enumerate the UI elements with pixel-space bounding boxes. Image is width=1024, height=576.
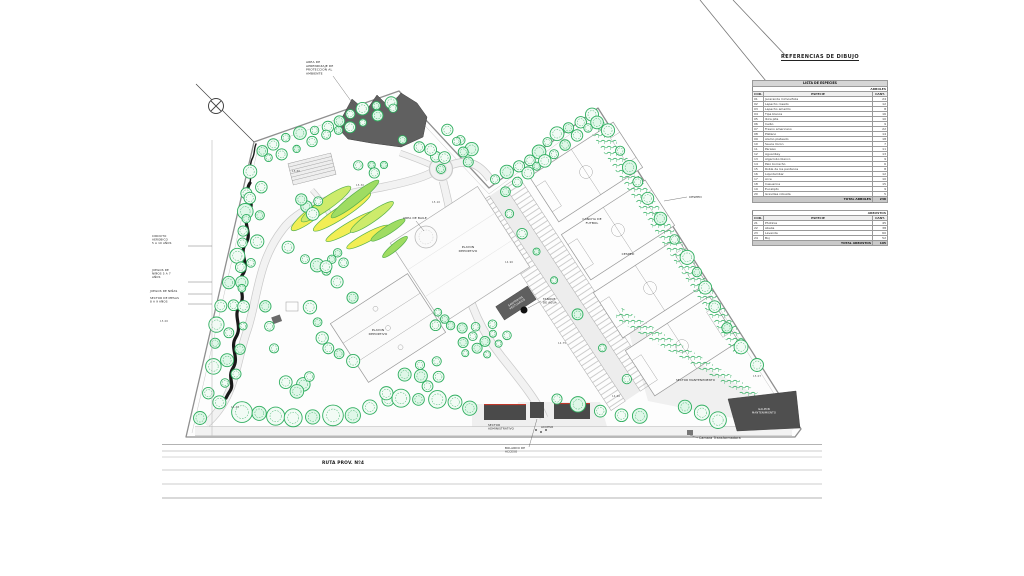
tree-symbol [282, 241, 294, 253]
tree-symbol [221, 354, 234, 367]
label-area-aprendizaje: AREA DEAPRENDIZAJE DEPROTECCION ALAMBIEN… [306, 60, 333, 75]
tree-symbol [463, 157, 473, 167]
tree-symbol [235, 344, 245, 354]
tree-symbol [235, 262, 246, 273]
tree-symbol [512, 177, 522, 187]
tree-symbol [323, 343, 334, 354]
tree-symbol [276, 149, 287, 160]
tree-symbol [331, 276, 343, 288]
tree-symbol [414, 369, 427, 382]
label-cota-8: 15.00 [160, 319, 168, 323]
tree-symbol [356, 102, 369, 115]
tree-symbol [398, 136, 406, 144]
tree-symbol [501, 187, 511, 197]
tree-symbol [243, 165, 256, 178]
tree-symbol [503, 331, 512, 340]
tree-symbol [284, 409, 302, 427]
tree-symbol [380, 161, 387, 168]
tree-symbol [296, 194, 307, 205]
tree-symbol [279, 376, 292, 389]
tree-symbol [320, 261, 332, 273]
water-tank [521, 307, 528, 314]
tree-symbol [290, 385, 304, 399]
tree-symbol [265, 321, 275, 331]
tree-symbol [231, 369, 241, 379]
tree-symbol [389, 104, 397, 112]
tree-symbol [238, 284, 246, 292]
tree-symbol [601, 124, 614, 137]
tree-symbol [256, 181, 268, 193]
tree-symbol [244, 192, 256, 204]
tree-symbol [293, 145, 300, 152]
tree-symbol [458, 338, 468, 348]
tree-symbol [452, 137, 460, 145]
tree-symbol [551, 277, 558, 284]
label-cota-6: 15.07 [753, 374, 761, 378]
tree-symbol [232, 402, 253, 423]
tree-symbol [380, 387, 393, 400]
tree-symbol [269, 344, 278, 353]
tree-symbol [572, 309, 583, 320]
tree-symbol [242, 214, 250, 222]
tree-symbol [415, 360, 424, 369]
tree-symbol [265, 154, 273, 162]
tree-symbol [522, 167, 534, 179]
tree-symbol [491, 175, 500, 184]
tree-symbol [372, 102, 380, 110]
tree-symbol [322, 130, 331, 139]
tree-symbol [339, 258, 349, 268]
tree-symbol [239, 322, 247, 330]
tree-symbol [463, 401, 477, 415]
tree-symbol [252, 406, 266, 420]
tree-symbol [694, 405, 709, 420]
tree-symbol [462, 350, 469, 357]
tree-symbol [347, 292, 358, 303]
dance-circle [415, 226, 437, 248]
tree-symbol [599, 344, 607, 352]
tree-symbol [305, 410, 319, 424]
label-sector-mantenimiento: SECTOR MANTENIMIENTO [676, 378, 716, 382]
tree-symbol [414, 142, 425, 153]
tree-symbol [442, 124, 453, 135]
tree-symbol [500, 165, 513, 178]
tree-symbol [223, 276, 235, 288]
tree-symbol [489, 330, 496, 337]
tree-symbol [549, 150, 558, 159]
tree-symbol [615, 409, 628, 422]
tree-symbol [430, 320, 441, 331]
tree-symbol [215, 300, 227, 312]
tree-symbol [281, 133, 290, 142]
tree-symbol [307, 136, 317, 146]
tree-symbol [260, 301, 271, 312]
tree-symbol [471, 322, 480, 331]
tree-symbol [458, 147, 468, 157]
tree-symbol [591, 116, 604, 129]
tree-symbol [570, 397, 585, 412]
tree-symbol [539, 155, 552, 168]
tree-symbol [734, 340, 748, 354]
tree-symbol [488, 320, 497, 329]
drawing-sheet: AREA DEAPRENDIZAJE DEPROTECCION ALAMBIEN… [0, 0, 1024, 576]
tree-symbol [213, 396, 226, 409]
tree-symbol [238, 238, 248, 248]
tree-symbol [517, 228, 527, 238]
tree-symbol [363, 400, 377, 414]
tree-symbol [221, 379, 230, 388]
tree-symbol [413, 394, 425, 406]
transformer-box [687, 430, 693, 435]
tree-symbol [230, 248, 245, 263]
legend-table-trees: LISTA DE ESPECIESARBOLESCOD.ESPECIECANT.… [752, 80, 888, 203]
tree-symbol [333, 249, 341, 257]
tree-symbol [560, 140, 571, 151]
tree-symbol [238, 301, 250, 313]
admin-building [484, 404, 526, 420]
tree-symbol [622, 374, 631, 383]
tree-symbol [203, 387, 214, 398]
tree-symbol [616, 146, 625, 155]
tree-symbol [305, 372, 315, 382]
label-acceso: ACCESO [541, 425, 554, 429]
tree-symbol [563, 123, 573, 133]
label-cota-9: 15.60 [292, 169, 300, 173]
tree-symbol [334, 349, 344, 359]
tree-symbol [722, 323, 732, 333]
tree-symbol [468, 332, 477, 341]
tree-symbol [429, 391, 447, 409]
tree-symbol [448, 395, 462, 409]
tree-symbol [314, 197, 323, 206]
label-cesped-1: CESPED [689, 195, 702, 199]
tree-symbol [206, 359, 222, 375]
tree-symbol [359, 119, 366, 126]
tree-symbol [255, 211, 264, 220]
legend-panel: REFERENCIAS DE DIBUJO LISTA DE ESPECIESA… [752, 54, 888, 253]
label-cota-5: 14.60 [612, 394, 620, 398]
tree-symbol [622, 160, 636, 174]
kiosk-building [530, 402, 544, 418]
north-arrow [196, 84, 254, 142]
tree-symbol [347, 354, 360, 367]
tree-symbol [425, 144, 437, 156]
tree-symbol [238, 226, 248, 236]
label-cota-1: 15.30 [356, 183, 364, 187]
tree-symbol [247, 258, 256, 267]
label-area-baile: AREA DE BAILE [403, 216, 427, 220]
label-tanque-agua: TANQUEDE AGUA [542, 297, 557, 305]
tree-symbol [372, 110, 383, 121]
tree-symbol [369, 168, 379, 178]
tree-symbol [294, 127, 307, 140]
tree-symbol [434, 308, 442, 316]
tree-symbol [224, 328, 234, 338]
tree-symbol [692, 267, 701, 276]
tree-symbol [268, 139, 279, 150]
tree-symbol [316, 332, 328, 344]
tree-symbol [437, 165, 446, 174]
tree-symbol [505, 209, 513, 217]
tree-symbol [710, 412, 727, 429]
tree-symbol [594, 405, 606, 417]
tree-symbol [633, 177, 643, 187]
tree-symbol [194, 412, 207, 425]
tree-symbol [472, 343, 482, 353]
tree-symbol [709, 301, 721, 313]
label-sector-mesas: SECTOR DE MESAS8 A 9 AÑOS [150, 296, 179, 304]
tree-symbol [654, 212, 667, 225]
road-lines [162, 445, 822, 499]
tree-symbol [346, 110, 355, 119]
tree-symbol [267, 407, 285, 425]
label-circuito-aerobico: CIRCUITOAEROBICO5 A 10 AÑOS [152, 234, 172, 245]
tree-symbol [251, 235, 264, 248]
label-cota-2: 15.10 [432, 200, 440, 204]
tree-symbol [484, 351, 491, 358]
tree-symbol [334, 116, 345, 127]
tree-symbol [345, 122, 356, 133]
tree-symbol [210, 338, 220, 348]
tree-symbol [345, 408, 360, 423]
label-juegos-5-7: JUEGOS DENIÑOS 5 A 7AÑOS [151, 268, 171, 279]
tree-symbol [432, 357, 441, 366]
tree-symbol [433, 371, 444, 382]
tree-symbol [678, 400, 691, 413]
tree-symbol [751, 359, 764, 372]
label-cota-7: 15.45 [231, 405, 239, 409]
tree-symbol [543, 138, 552, 147]
tree-symbol [571, 130, 582, 141]
tree-symbol [670, 235, 680, 245]
tree-symbol [552, 394, 562, 404]
label-ruta-prov: RUTA PROV. Nº4 [322, 460, 364, 466]
label-juegos-ninas: JUEGOS DE NIÑAS [149, 288, 178, 293]
tree-symbol [632, 409, 647, 424]
tree-symbol [228, 300, 239, 311]
tree-symbol [306, 208, 319, 221]
tree-symbol [313, 318, 322, 327]
tree-symbol [533, 248, 540, 255]
tree-symbol [550, 127, 564, 141]
legend-table-shrubs: ARBUSTOSCOD.ESPECIECANT.21Photinia4522Ab… [752, 210, 888, 247]
tree-symbol [439, 152, 451, 164]
tree-symbol [354, 161, 363, 170]
tree-symbol [457, 323, 467, 333]
tree-symbol [323, 405, 344, 426]
tree-symbol [398, 368, 411, 381]
tree-symbol [422, 381, 433, 392]
tree-symbol [310, 126, 318, 134]
tree-symbol [300, 255, 309, 264]
tree-symbol [334, 126, 342, 134]
tree-symbol [209, 317, 224, 332]
tree-symbol [680, 250, 694, 264]
tree-symbol [446, 321, 455, 330]
label-cota-4: 14.75 [558, 341, 566, 345]
label-bolardo-acceso: BOLARDO DEACCESO [505, 446, 525, 454]
label-cesped-2: CESPED [622, 252, 635, 256]
tree-symbol [303, 300, 316, 313]
tree-symbol [392, 389, 410, 407]
education-building [337, 93, 427, 147]
label-cota-3: 14.90 [505, 260, 513, 264]
tree-symbol [495, 340, 502, 347]
tree-symbol [642, 192, 654, 204]
legend-title: REFERENCIAS DE DIBUJO [752, 54, 888, 60]
tree-symbol [699, 281, 712, 294]
label-camara-transformadora: Camara Transformadora [699, 436, 741, 440]
